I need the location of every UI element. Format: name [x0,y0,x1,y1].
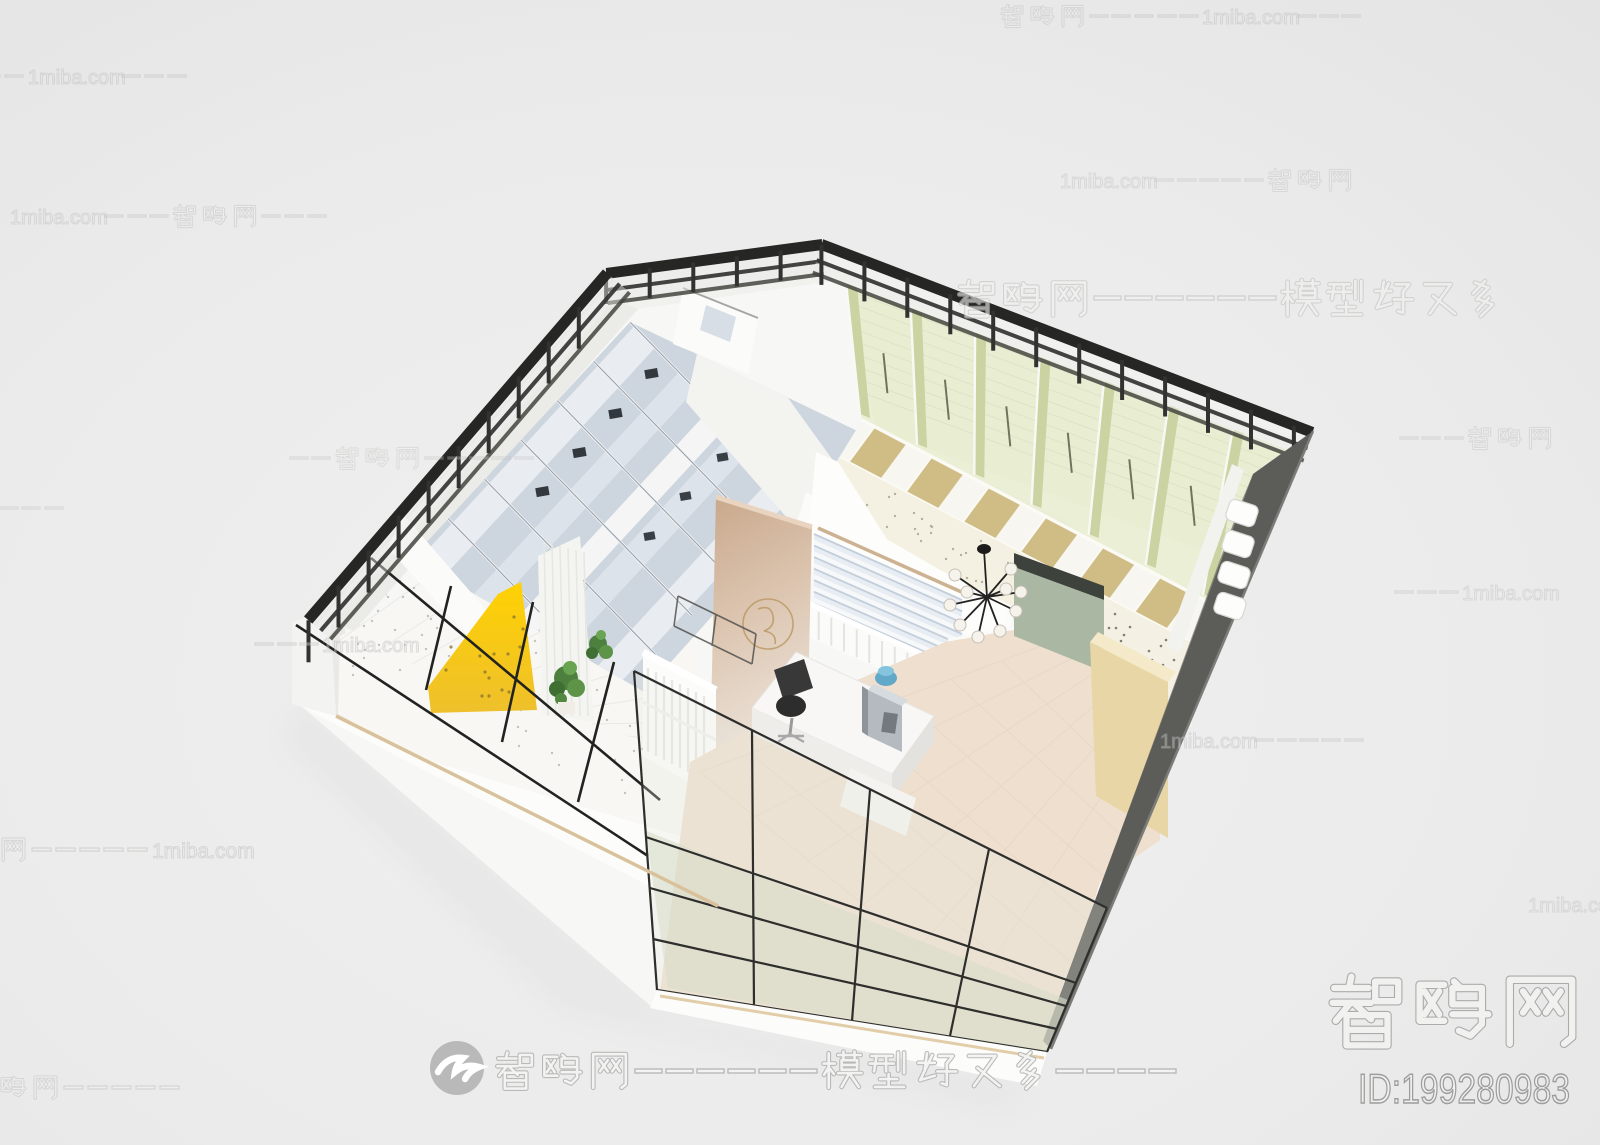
svg-text:1miba.com: 1miba.com [1060,171,1158,193]
svg-text:1miba.com: 1miba.com [322,635,420,657]
svg-text:ID:199280983: ID:199280983 [1358,1065,1570,1112]
svg-text:1miba.com: 1miba.com [1462,583,1560,605]
svg-text:1miba.com: 1miba.com [1528,895,1600,917]
svg-text:1miba.com: 1miba.com [1202,7,1300,29]
svg-text:1miba.com: 1miba.com [10,207,108,229]
svg-text:1miba.com: 1miba.com [1160,731,1258,753]
svg-text:1miba.com: 1miba.com [152,840,255,863]
svg-text:1miba.com: 1miba.com [28,67,126,89]
